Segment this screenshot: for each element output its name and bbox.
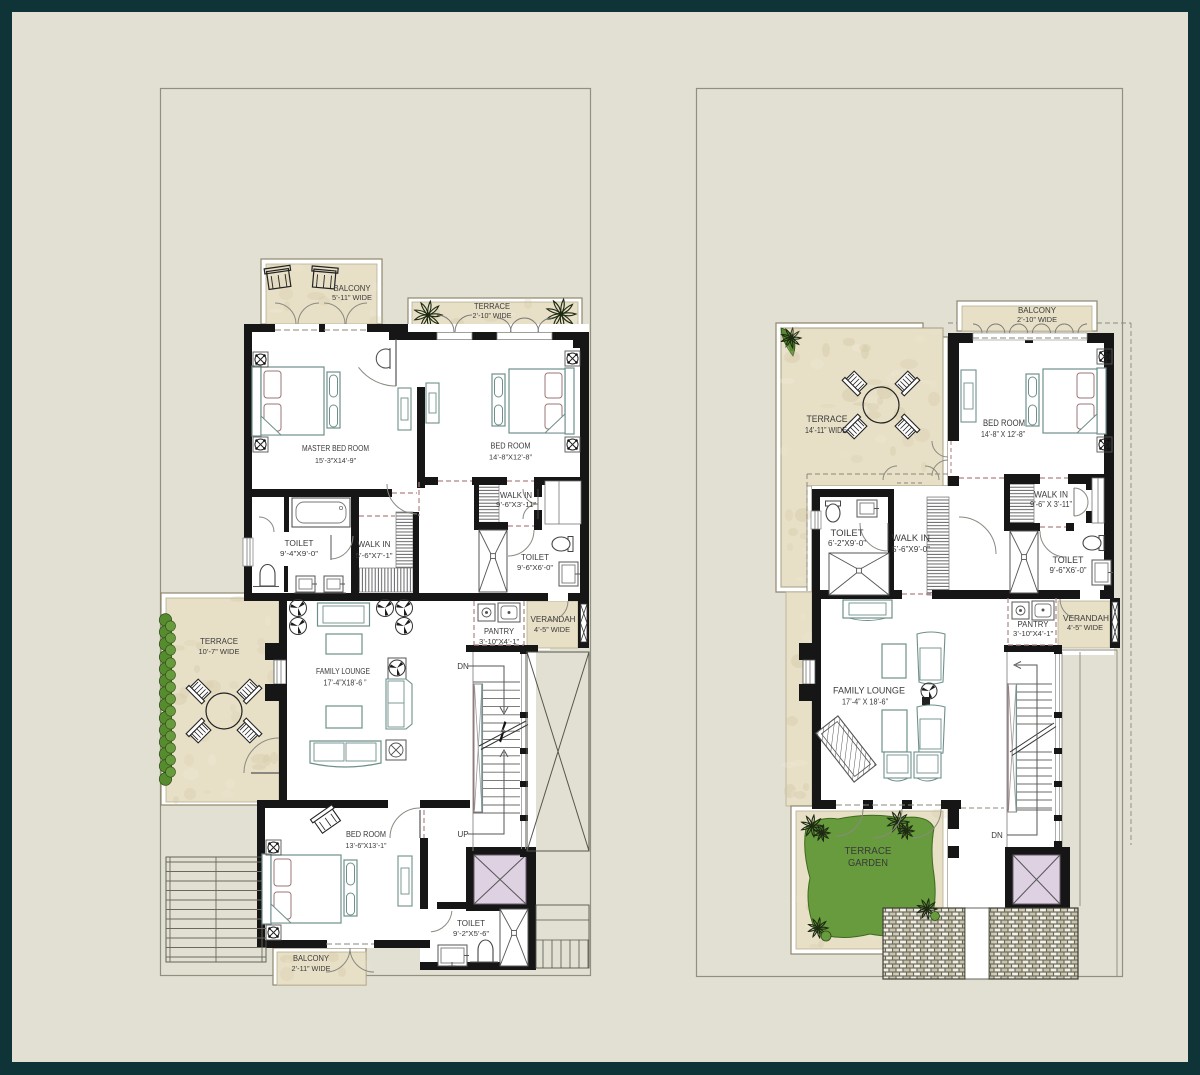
- svg-text:9’-2”X5’-6”: 9’-2”X5’-6”: [453, 929, 489, 938]
- svg-text:BALCONY: BALCONY: [1018, 306, 1057, 315]
- svg-text:TOILET: TOILET: [285, 539, 314, 548]
- svg-text:5’-6”X7’-1”: 5’-6”X7’-1”: [356, 551, 393, 560]
- svg-text:FAMILY LOUNGE: FAMILY LOUNGE: [316, 667, 370, 676]
- svg-text:TOILET: TOILET: [457, 919, 485, 928]
- svg-text:VERANDAH: VERANDAH: [1063, 614, 1109, 623]
- svg-text:14’-8”X12’-8”: 14’-8”X12’-8”: [489, 453, 532, 462]
- svg-text:WALK IN: WALK IN: [500, 491, 532, 500]
- svg-text:BED ROOM: BED ROOM: [983, 418, 1025, 429]
- svg-text:14’-8” X 12’-8”: 14’-8” X 12’-8”: [981, 429, 1025, 439]
- svg-text:9’-6”X3’-11”: 9’-6”X3’-11”: [496, 500, 537, 509]
- svg-text:4’-5” WIDE: 4’-5” WIDE: [534, 625, 570, 634]
- svg-text:DN: DN: [991, 831, 1003, 840]
- svg-text:17’-4” X 18’-6”: 17’-4” X 18’-6”: [842, 697, 888, 707]
- svg-text:15’-3”X14’-9”: 15’-3”X14’-9”: [315, 456, 356, 465]
- svg-text:PANTRY: PANTRY: [484, 627, 515, 636]
- svg-text:4’-5” WIDE: 4’-5” WIDE: [1067, 623, 1103, 632]
- svg-text:6’-2”X9’-0”: 6’-2”X9’-0”: [828, 538, 866, 548]
- svg-text:17’-4”X18’-6 ”: 17’-4”X18’-6 ”: [324, 679, 367, 688]
- svg-text:WALK IN: WALK IN: [892, 533, 930, 544]
- svg-text:UP: UP: [457, 830, 468, 839]
- svg-text:PANTRY: PANTRY: [1018, 620, 1050, 629]
- svg-text:BALCONY: BALCONY: [334, 284, 372, 293]
- svg-text:3’-10”X4’-1”: 3’-10”X4’-1”: [1013, 629, 1053, 638]
- svg-text:2’-10” WIDE: 2’-10” WIDE: [473, 311, 512, 320]
- svg-text:VERANDAH: VERANDAH: [531, 615, 576, 624]
- svg-text:BALCONY: BALCONY: [293, 954, 330, 963]
- svg-text:WALK IN: WALK IN: [358, 540, 391, 549]
- svg-text:3’-10”X4’-1”: 3’-10”X4’-1”: [479, 637, 519, 646]
- svg-text:BED ROOM: BED ROOM: [491, 442, 531, 451]
- svg-text:TERRACE: TERRACE: [200, 637, 238, 646]
- svg-text:14’-11” WIDE: 14’-11” WIDE: [805, 425, 847, 435]
- svg-text:10’-7” WIDE: 10’-7” WIDE: [199, 647, 240, 656]
- svg-text:BED ROOM: BED ROOM: [346, 830, 386, 839]
- svg-text:TERRACE: TERRACE: [474, 302, 510, 311]
- svg-text:5’-6”X9’-0”: 5’-6”X9’-0”: [892, 544, 930, 554]
- svg-text:TERRACE: TERRACE: [845, 845, 892, 857]
- svg-text:9’-6” X 3’-11”: 9’-6” X 3’-11”: [1030, 500, 1072, 509]
- svg-text:9’-4”X9’-0”: 9’-4”X9’-0”: [280, 549, 318, 558]
- svg-text:FAMILY LOUNGE: FAMILY LOUNGE: [833, 686, 905, 697]
- svg-text:TOILET: TOILET: [521, 553, 549, 562]
- svg-text:5’-11” WIDE: 5’-11” WIDE: [332, 293, 372, 302]
- svg-text:9’-6”X6’-0”: 9’-6”X6’-0”: [517, 563, 553, 572]
- svg-text:2’-10” WIDE: 2’-10” WIDE: [1017, 315, 1057, 324]
- svg-text:MASTER BED ROOM: MASTER BED ROOM: [302, 444, 369, 453]
- svg-text:TERRACE: TERRACE: [807, 414, 848, 425]
- svg-text:DN: DN: [457, 662, 469, 671]
- svg-text:9’-6”X6’-0”: 9’-6”X6’-0”: [1050, 565, 1087, 575]
- svg-text:GARDEN: GARDEN: [848, 857, 888, 869]
- svg-text:13’-6”X13’-1”: 13’-6”X13’-1”: [346, 841, 387, 850]
- svg-text:WALK IN: WALK IN: [1034, 490, 1068, 500]
- svg-text:2’-11” WIDE: 2’-11” WIDE: [292, 964, 331, 973]
